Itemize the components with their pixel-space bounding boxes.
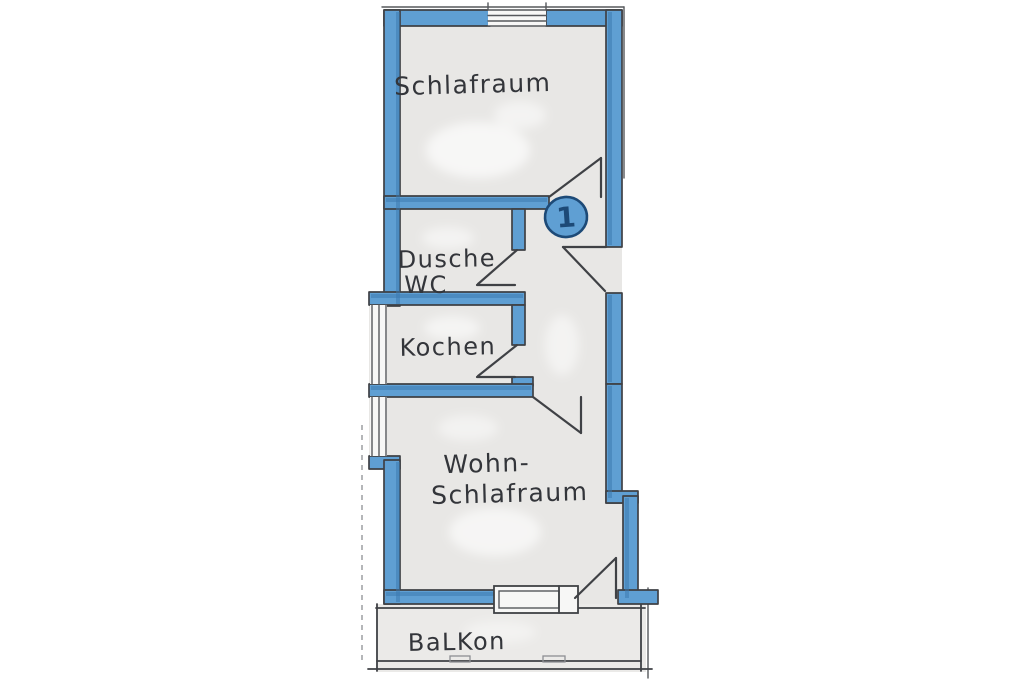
schlafraum-label: Schlafraum — [394, 68, 552, 101]
kochen-label: Kochen — [399, 332, 496, 362]
wohn-label-line2: Schlafraum — [431, 477, 589, 510]
unit-number-text: 1 — [555, 200, 577, 234]
wall-bottom-right-cap — [618, 590, 658, 604]
wall-kochen-wohn-divider — [369, 384, 533, 397]
balkon-label: BaLKon — [408, 627, 506, 657]
floor-plan: 1 Schlafraum Dusche WC Kochen Wohn- Schl… — [0, 0, 1024, 683]
wohn-schlafraum-side-window — [370, 397, 387, 456]
wall-kochen-right — [512, 305, 525, 345]
kochen-side-window — [370, 305, 387, 384]
dusche-label: Dusche — [397, 244, 496, 274]
balcony-window — [494, 586, 578, 613]
wall-schlafraum-bottom — [384, 196, 549, 209]
unit-number-badge: 1 — [544, 196, 589, 239]
wc-label: WC — [404, 271, 448, 299]
wall-dusche-right — [512, 209, 525, 250]
wohn-label-line1: Wohn- — [443, 448, 530, 479]
